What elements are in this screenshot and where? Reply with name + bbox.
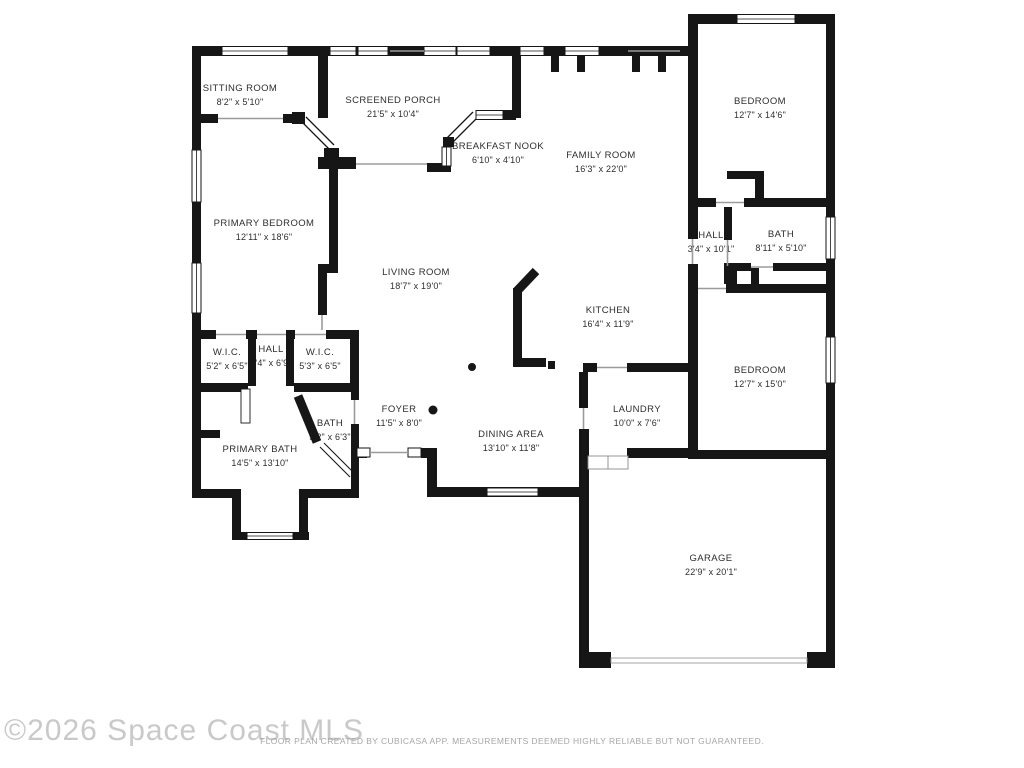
room-name: BATH bbox=[309, 417, 351, 431]
room-name: W.I.C. bbox=[299, 346, 341, 360]
room-name: BEDROOM bbox=[734, 364, 786, 378]
floor-plan-drawing bbox=[0, 0, 1024, 768]
room-label-primary-bedroom: PRIMARY BEDROOM12'11" x 18'6" bbox=[214, 217, 315, 243]
room-name: KITCHEN bbox=[582, 304, 633, 318]
room-dims: 22'9" x 20'1" bbox=[685, 566, 737, 578]
room-dims: 3'4" x 10'1" bbox=[688, 243, 735, 255]
room-name: GARAGE bbox=[685, 552, 737, 566]
room-label-bedroom-2: BEDROOM12'7" x 15'0" bbox=[734, 364, 786, 390]
garage-step bbox=[588, 456, 628, 469]
room-label-wic-right: W.I.C.5'3" x 6'5" bbox=[299, 346, 341, 372]
door-pivot-dot bbox=[429, 406, 438, 415]
room-name: W.I.C. bbox=[206, 346, 248, 360]
door-pivot-dot bbox=[468, 363, 476, 371]
room-name: FAMILY ROOM bbox=[566, 149, 636, 163]
room-name: HALL bbox=[688, 229, 735, 243]
room-label-wic-left: W.I.C.5'2" x 6'5" bbox=[206, 346, 248, 372]
room-label-garage: GARAGE22'9" x 20'1" bbox=[685, 552, 737, 578]
room-dims: 16'4" x 11'9" bbox=[582, 318, 633, 330]
room-dims: 5'2" x 6'3" bbox=[309, 431, 351, 443]
room-name: DINING AREA bbox=[478, 428, 544, 442]
room-dims: 3'4" x 6'9" bbox=[250, 357, 292, 369]
room-label-foyer: FOYER11'5" x 8'0" bbox=[376, 403, 422, 429]
room-label-kitchen: KITCHEN16'4" x 11'9" bbox=[582, 304, 633, 330]
room-dims: 8'11" x 5'10" bbox=[755, 242, 806, 254]
room-label-primary-bath: PRIMARY BATH14'5" x 13'10" bbox=[222, 443, 297, 469]
room-label-hall-closets: HALL3'4" x 6'9" bbox=[250, 343, 292, 369]
pocket-door bbox=[241, 389, 250, 423]
room-dims: 12'7" x 14'6" bbox=[734, 109, 786, 121]
room-name: SCREENED PORCH bbox=[345, 94, 440, 108]
room-label-hall-rear: HALL3'4" x 10'1" bbox=[688, 229, 735, 255]
room-name: BEDROOM bbox=[734, 95, 786, 109]
room-dims: 10'0" x 7'6" bbox=[613, 417, 661, 429]
room-name: SITTING ROOM bbox=[203, 82, 277, 96]
room-label-sitting-room: SITTING ROOM8'2" x 5'10" bbox=[203, 82, 277, 108]
room-label-dining-area: DINING AREA13'10" x 11'8" bbox=[478, 428, 544, 454]
room-label-bedroom-1: BEDROOM12'7" x 14'6" bbox=[734, 95, 786, 121]
room-name: BATH bbox=[755, 228, 806, 242]
room-name: LIVING ROOM bbox=[382, 266, 450, 280]
room-dims: 12'11" x 18'6" bbox=[214, 231, 315, 243]
room-label-laundry: LAUNDRY10'0" x 7'6" bbox=[613, 403, 661, 429]
room-dims: 18'7" x 19'0" bbox=[382, 280, 450, 292]
room-label-family-room: FAMILY ROOM16'3" x 22'0" bbox=[566, 149, 636, 175]
room-label-bath-rear: BATH8'11" x 5'10" bbox=[755, 228, 806, 254]
room-name: PRIMARY BEDROOM bbox=[214, 217, 315, 231]
room-dims: 21'5" x 10'4" bbox=[345, 108, 440, 120]
floor-plan-page: SITTING ROOM8'2" x 5'10" SCREENED PORCH2… bbox=[0, 0, 1024, 768]
room-dims: 11'5" x 8'0" bbox=[376, 417, 422, 429]
room-dims: 5'3" x 6'5" bbox=[299, 360, 341, 372]
room-dims: 16'3" x 22'0" bbox=[566, 163, 636, 175]
room-label-living-room: LIVING ROOM18'7" x 19'0" bbox=[382, 266, 450, 292]
room-dims: 12'7" x 15'0" bbox=[734, 378, 786, 390]
disclaimer-text: FLOOR PLAN CREATED BY CUBICASA APP. MEAS… bbox=[260, 736, 764, 746]
garage-door bbox=[611, 658, 807, 663]
room-dims: 13'10" x 11'8" bbox=[478, 442, 544, 454]
room-dims: 8'2" x 5'10" bbox=[203, 96, 277, 108]
room-label-screened-porch: SCREENED PORCH21'5" x 10'4" bbox=[345, 94, 440, 120]
room-label-bath-front: BATH5'2" x 6'3" bbox=[309, 417, 351, 443]
room-dims: 14'5" x 13'10" bbox=[222, 457, 297, 469]
room-label-breakfast-nook: BREAKFAST NOOK6'10" x 4'10" bbox=[452, 140, 544, 166]
room-name: LAUNDRY bbox=[613, 403, 661, 417]
room-dims: 6'10" x 4'10" bbox=[452, 154, 544, 166]
room-name: PRIMARY BATH bbox=[222, 443, 297, 457]
room-name: FOYER bbox=[376, 403, 422, 417]
room-dims: 5'2" x 6'5" bbox=[206, 360, 248, 372]
room-name: HALL bbox=[250, 343, 292, 357]
room-name: BREAKFAST NOOK bbox=[452, 140, 544, 154]
